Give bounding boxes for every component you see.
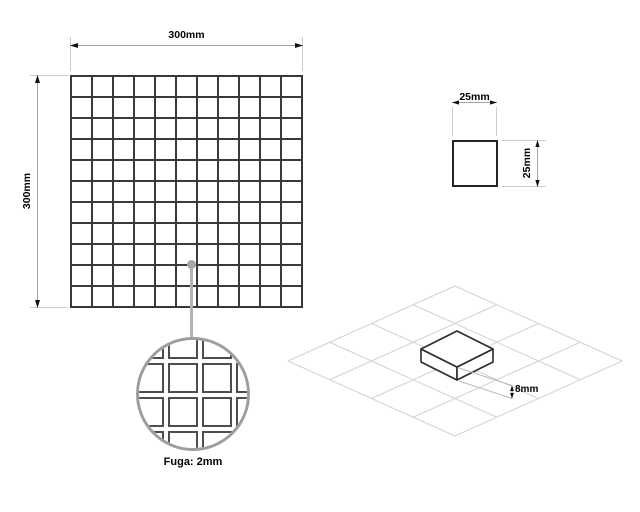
magnified-tile [202,397,232,427]
mosaic-tile [281,139,302,160]
iso-floor-grid [288,286,622,436]
mosaic-tile [71,181,92,202]
detail-anchor-dot-icon [187,260,196,269]
mosaic-tile [197,97,218,118]
mosaic-tile [134,139,155,160]
mosaic-tile [92,97,113,118]
mosaic-tile [113,76,134,97]
single-tile-square [452,140,498,187]
mosaic-tile [281,181,302,202]
mosaic-tile [197,181,218,202]
mosaic-tile [281,202,302,223]
arrowhead-down-icon [510,393,514,399]
mosaic-tile [92,76,113,97]
mosaic-tile [113,286,134,307]
magnified-tile [202,431,232,451]
mosaic-tile [176,76,197,97]
mosaic-tile [176,97,197,118]
mosaic-tile [71,286,92,307]
mosaic-tile [197,286,218,307]
mosaic-tile [71,244,92,265]
magnified-tile [136,397,164,427]
magnified-tile [168,337,198,359]
mosaic-tile [155,286,176,307]
mosaic-tile [260,118,281,139]
mosaic-tile [176,202,197,223]
mosaic-tile [218,286,239,307]
grout-caption: Fuga: 2mm [133,456,253,468]
mosaic-tile [281,76,302,97]
magnified-tile [136,431,164,451]
mosaic-tile [281,118,302,139]
mosaic-tile [239,244,260,265]
mosaic-tile [71,97,92,118]
mosaic-tile [239,181,260,202]
mosaic-tile [92,202,113,223]
mosaic-tile [71,223,92,244]
mosaic-tile [113,202,134,223]
arrowhead-down-icon [535,180,539,187]
mosaic-tile [197,76,218,97]
mosaic-tile [113,181,134,202]
mosaic-tile [71,202,92,223]
mosaic-tile [71,76,92,97]
mosaic-tile [239,286,260,307]
mosaic-tile [260,139,281,160]
mosaic-tile [197,139,218,160]
mosaic-tile [71,139,92,160]
mosaic-tile [239,160,260,181]
grout-detail-grid [136,337,250,451]
mosaic-tile [281,97,302,118]
mosaic-tile [155,181,176,202]
mosaic-tile [155,76,176,97]
mosaic-tile [281,244,302,265]
mosaic-sheet-grid [70,75,303,308]
magnified-tile [236,431,250,451]
mosaic-tile [92,223,113,244]
mosaic-tile [239,223,260,244]
mosaic-tile [155,118,176,139]
mosaic-tile [134,76,155,97]
mosaic-tile [260,160,281,181]
magnified-tile [168,431,198,451]
mosaic-tile [239,118,260,139]
mosaic-tile [134,244,155,265]
mosaic-tile [218,202,239,223]
iso-tile-top-face [421,331,493,367]
iso-tile-left-face [421,349,457,380]
mosaic-tile [197,244,218,265]
mosaic-tile [176,118,197,139]
sheet-height-dimension [30,75,68,308]
mosaic-tile [239,265,260,286]
mosaic-tile [176,160,197,181]
mosaic-tile [176,286,197,307]
mosaic-tile [92,160,113,181]
arrowhead-down-icon [35,300,40,308]
magnified-tile [168,397,198,427]
mosaic-tile [239,76,260,97]
mosaic-tile [113,97,134,118]
mosaic-tile [281,265,302,286]
mosaic-tile [155,244,176,265]
mosaic-tile [134,97,155,118]
mosaic-tile [281,160,302,181]
mosaic-tile [134,181,155,202]
mosaic-tile [113,118,134,139]
mosaic-tile [71,265,92,286]
magnified-tile [202,337,232,359]
tile-height-dimension-label: 25mm [521,138,533,188]
mosaic-tile [239,139,260,160]
arrowhead-right-icon [295,43,303,48]
mosaic-tile [260,223,281,244]
mosaic-tile [218,76,239,97]
mosaic-tile [155,139,176,160]
mosaic-tile [71,118,92,139]
mosaic-tile [260,97,281,118]
mosaic-tile [218,223,239,244]
mosaic-tile [260,76,281,97]
mosaic-tile [113,265,134,286]
mosaic-tile [134,160,155,181]
mosaic-tile [260,244,281,265]
mosaic-tile [281,223,302,244]
mosaic-tile [218,118,239,139]
mosaic-tile [218,97,239,118]
arrowhead-up-icon [35,75,40,83]
tile-thickness-dimension-label: 8mm [515,384,538,395]
sheet-height-dimension-label: 300mm [21,166,33,216]
mosaic-tile [155,223,176,244]
mosaic-tile [218,139,239,160]
mosaic-tile [281,286,302,307]
mosaic-tile [92,139,113,160]
mosaic-tile [113,160,134,181]
mosaic-tile [92,244,113,265]
iso-tile-block [421,331,493,380]
mosaic-tile [155,97,176,118]
mosaic-tile [92,286,113,307]
mosaic-tile [197,223,218,244]
mosaic-tile [197,118,218,139]
arrowhead-up-icon [535,140,539,147]
mosaic-tile [113,139,134,160]
mosaic-tile [197,265,218,286]
grout-detail-circle [136,337,250,451]
mosaic-tile [134,202,155,223]
mosaic-tile [113,244,134,265]
mosaic-tile [218,244,239,265]
mosaic-tile [134,223,155,244]
mosaic-tile [176,181,197,202]
tile-width-dimension [452,100,497,136]
magnified-tile [236,363,250,393]
mosaic-tile [260,202,281,223]
mosaic-tile [92,118,113,139]
mosaic-tile [239,97,260,118]
mosaic-tile [218,160,239,181]
detail-leader-line [190,266,193,338]
mosaic-tile [155,202,176,223]
mosaic-tile [155,265,176,286]
mosaic-tile [134,265,155,286]
mosaic-tile [71,160,92,181]
sheet-width-dimension-label: 300mm [70,29,303,41]
mosaic-tile [92,265,113,286]
mosaic-tile [155,160,176,181]
tile-width-dimension-label: 25mm [437,91,512,103]
mosaic-tile [134,286,155,307]
mosaic-tile [176,223,197,244]
technical-drawing-canvas: 300mm 300mm 25mm 25mm Fuga: 2mm 8mm [0,0,640,512]
arrowhead-up-icon [510,386,514,392]
mosaic-tile [218,181,239,202]
magnified-tile [236,397,250,427]
mosaic-tile [134,118,155,139]
magnified-tile [236,337,250,359]
arrowhead-left-icon [70,43,78,48]
mosaic-tile [92,181,113,202]
mosaic-tile [197,160,218,181]
sheet-width-dimension [70,37,303,71]
mosaic-tile [239,202,260,223]
magnified-tile [136,363,164,393]
mosaic-tile [260,286,281,307]
mosaic-tile [260,265,281,286]
tile-thickness-dimension [459,368,514,399]
magnified-tile [202,363,232,393]
mosaic-tile [176,139,197,160]
mosaic-tile [197,202,218,223]
mosaic-tile [113,223,134,244]
magnified-tile [168,363,198,393]
iso-tile-right-face [457,349,493,380]
mosaic-tile [260,181,281,202]
magnified-tile [136,337,164,359]
mosaic-tile [218,265,239,286]
